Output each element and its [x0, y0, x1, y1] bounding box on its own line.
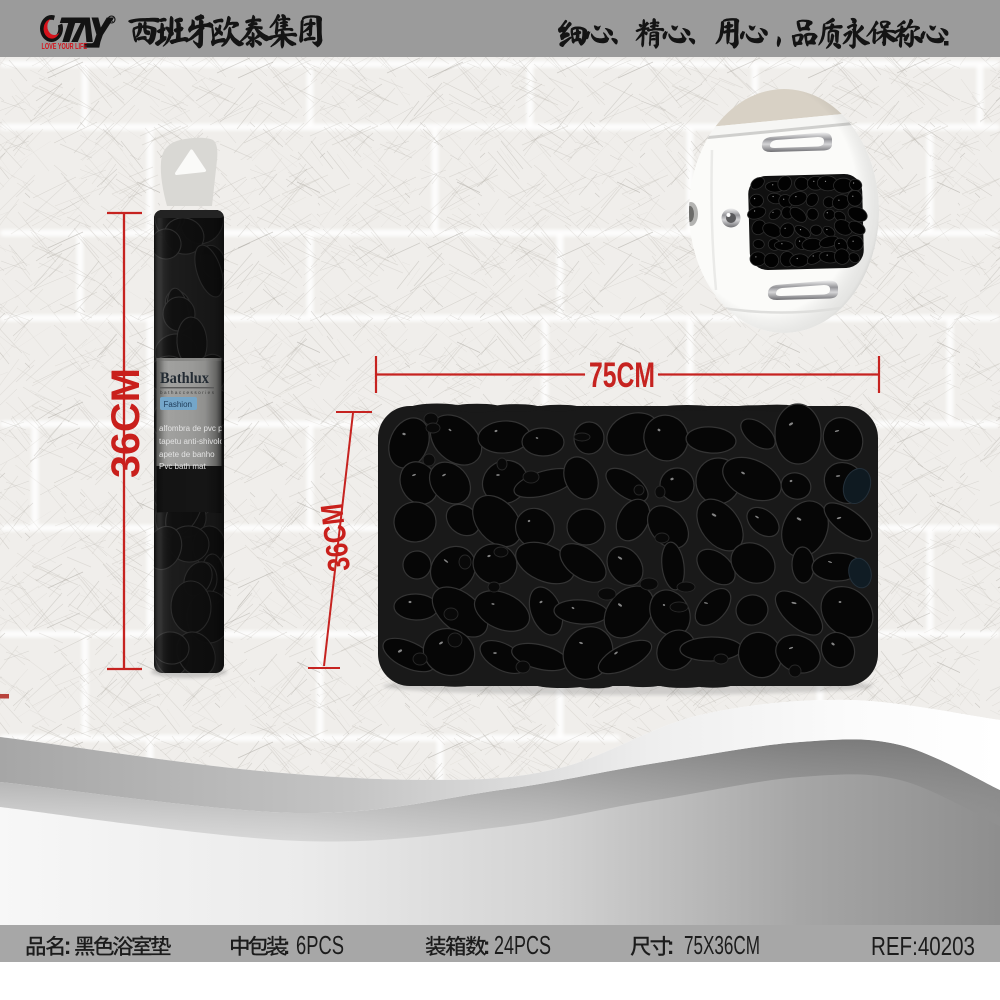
svg-text:36CM: 36CM [104, 368, 148, 478]
svg-text:LOVE YOUR LIFE: LOVE YOUR LIFE [42, 42, 88, 51]
svg-text:Pvc bath mat: Pvc bath mat [159, 462, 206, 471]
svg-text:Fashion: Fashion [164, 400, 192, 409]
svg-text:apete de banho: apete de banho [159, 450, 215, 459]
svg-text:24PCS: 24PCS [494, 930, 551, 960]
svg-text:tapetu anti-shivolo: tapetu anti-shivolo [159, 437, 224, 446]
svg-text:75CM: 75CM [589, 356, 655, 395]
svg-text:Bathlux: Bathlux [160, 370, 209, 387]
svg-text:R: R [109, 18, 113, 24]
svg-text:6PCS: 6PCS [296, 930, 344, 960]
svg-text:75X36CM: 75X36CM [684, 930, 760, 960]
svg-text:REF:40203: REF:40203 [871, 931, 975, 961]
svg-text:b a t h a c c e s s o r i e s: b a t h a c c e s s o r i e s [160, 390, 215, 395]
svg-text:alfombra de pvc pa: alfombra de pvc pa [159, 424, 228, 433]
